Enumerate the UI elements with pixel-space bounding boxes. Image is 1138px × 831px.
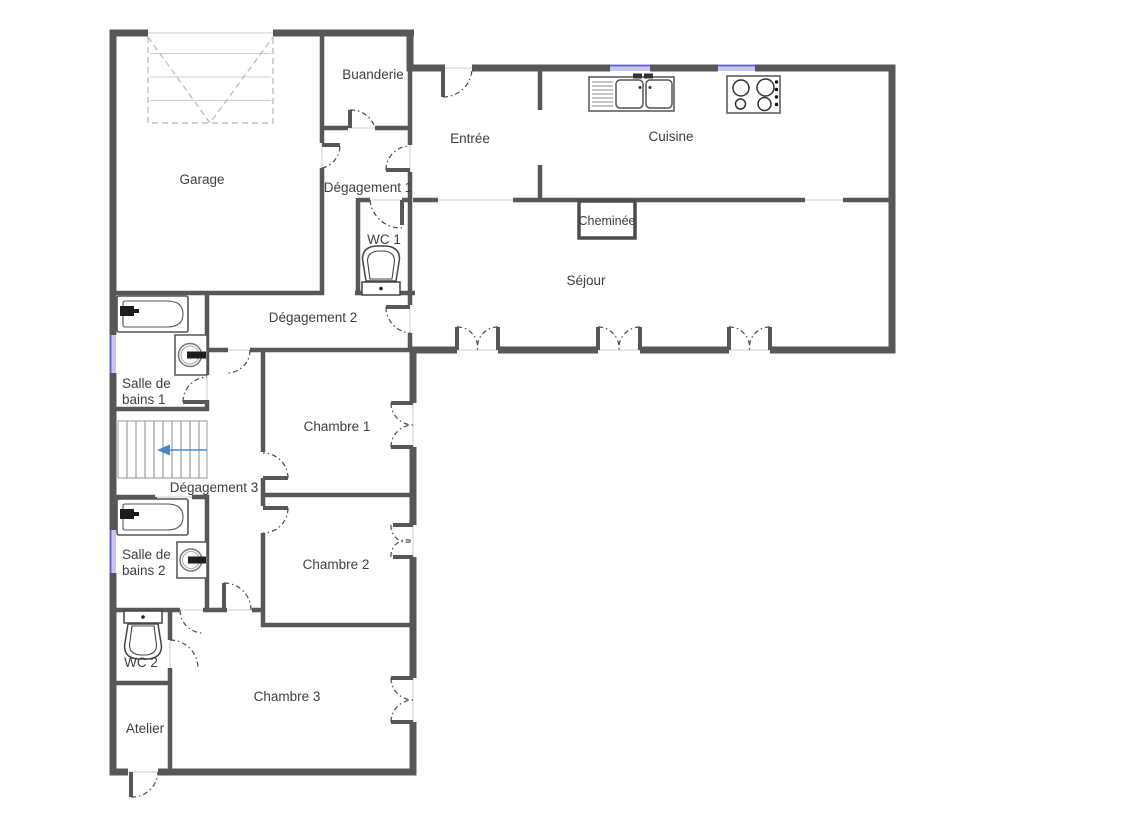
interior-walls [111, 33, 890, 774]
exterior-walls [110, 30, 896, 776]
bathtub-2-icon [117, 499, 188, 535]
washing-machine-2-icon [177, 542, 207, 578]
opening-thresholds [113, 33, 843, 772]
bathtub-1-icon [117, 296, 188, 332]
washing-machine-1-icon [175, 335, 207, 375]
door-swing-arcs [131, 68, 770, 797]
kitchen-sink-icon [589, 74, 674, 112]
fireplace-icon [579, 201, 635, 238]
stove-icon [727, 76, 780, 113]
toilet-1-icon [362, 246, 400, 295]
garage-door-icon [148, 37, 273, 123]
floor-plan: Garage Buanderie Dégagement 1 WC 1 Entré… [0, 0, 1138, 831]
stairs-icon [118, 421, 207, 478]
floor-plan-canvas [0, 0, 1138, 831]
toilet-2-icon [124, 611, 162, 659]
door-jamb-stubs [131, 68, 770, 797]
